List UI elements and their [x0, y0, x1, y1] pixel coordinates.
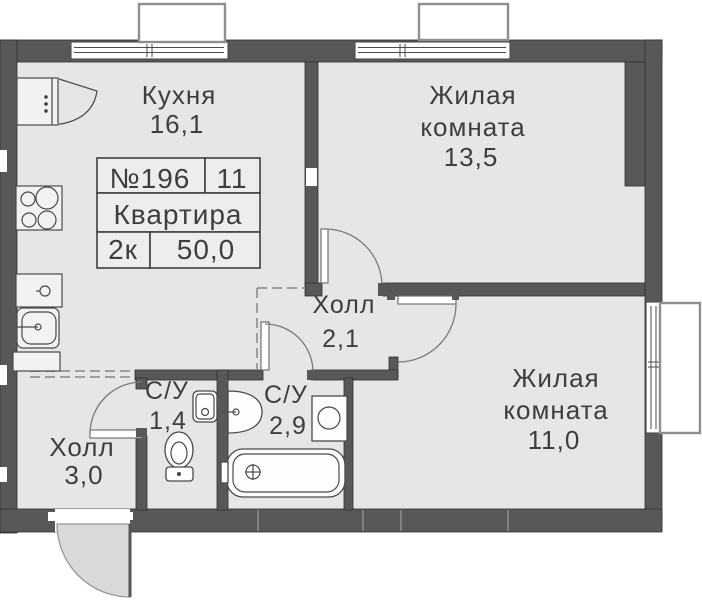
- door-pivot: [307, 370, 313, 380]
- kitchen-window: [71, 42, 228, 59]
- bathtub-icon: [221, 449, 345, 497]
- washing-machine-icon: [312, 396, 347, 441]
- door-pivot: [387, 292, 395, 300]
- wall-left: [0, 40, 17, 533]
- hall-inner-name: Холл: [313, 291, 376, 319]
- living1-window: [355, 42, 510, 59]
- door-pivot: [136, 428, 147, 437]
- wall-living1-living2: [383, 283, 645, 296]
- apartment-layout: 2к: [108, 234, 138, 265]
- apartment-type: Квартира: [113, 199, 242, 230]
- apartment-number: №196: [110, 163, 191, 194]
- balcony-living1: [419, 4, 508, 40]
- apartment-info-table: №196 11 Квартира 2к 50,0: [97, 158, 260, 268]
- apartment-total-area: 50,0: [177, 234, 236, 265]
- wall-wc1-left: [136, 436, 147, 510]
- wc-large-area: 2,9: [269, 412, 307, 440]
- wall-pilaster: [625, 62, 645, 186]
- living2-name-line1: Жилая: [512, 363, 599, 393]
- living1-name-line1: Жилая: [429, 80, 516, 110]
- door-pivot: [378, 283, 385, 296]
- door-frame-mark: [126, 512, 133, 520]
- stove-icon: [16, 186, 62, 230]
- hall-entry-name: Холл: [49, 432, 114, 462]
- wall-right: [645, 40, 662, 527]
- kitchen-cabinet-icon: [13, 352, 60, 371]
- door-frame-mark: [48, 512, 57, 521]
- wall-notch: [0, 467, 7, 482]
- kitchen-area: 16,1: [150, 109, 205, 139]
- toilet-icon: [165, 432, 193, 481]
- wc-small-name: С/У: [145, 377, 189, 405]
- balcony-kitchen: [139, 4, 225, 42]
- balcony-living2: [660, 303, 700, 433]
- wall-wc1-wc2: [217, 370, 228, 510]
- wall-notch: [0, 150, 7, 172]
- wall-wc-top-right: [311, 370, 398, 380]
- living1-area: 13,5: [444, 142, 499, 172]
- wc-large-name: С/У: [264, 381, 308, 409]
- floor-plan-drawing: №196 11 Квартира 2к 50,0 Кухня 16,1 Жила…: [0, 0, 702, 600]
- kitchen-counter-icon: [16, 274, 62, 307]
- hall-inner-area: 2,1: [322, 325, 360, 353]
- kitchen-sink-icon: [17, 308, 59, 348]
- living1-name-line2: комната: [420, 112, 525, 142]
- wall-notch: [0, 365, 7, 385]
- kitchen-name: Кухня: [142, 80, 217, 110]
- door-pivot: [452, 292, 459, 300]
- entrance-door: [57, 524, 130, 597]
- living2-area: 11,0: [528, 425, 581, 455]
- floor-plan: №196 11 Квартира 2к 50,0 Кухня 16,1 Жила…: [0, 0, 702, 600]
- living2-name-line2: комната: [503, 395, 608, 425]
- wc-small-sink-icon: [193, 391, 217, 422]
- hall-entry-area: 3,0: [64, 460, 103, 490]
- wall-slot: [306, 168, 317, 186]
- apartment-unit: 11: [216, 163, 247, 194]
- wc-small-area: 1,4: [149, 407, 187, 435]
